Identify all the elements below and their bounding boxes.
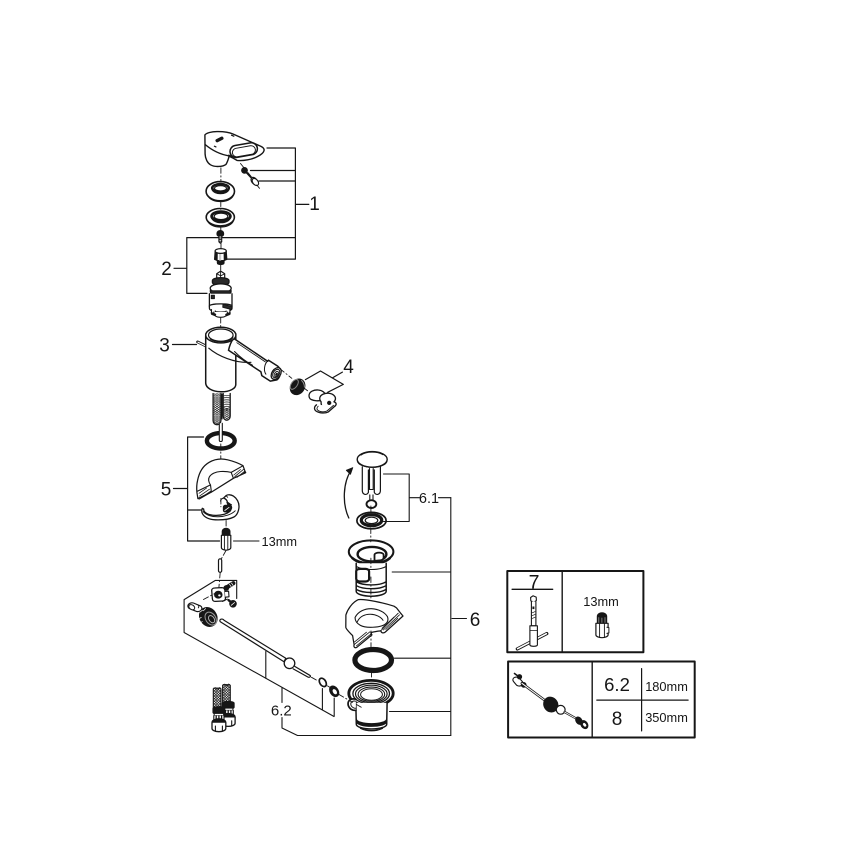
svg-text:6: 6	[470, 610, 481, 631]
svg-text:350mm: 350mm	[645, 710, 688, 725]
svg-text:180mm: 180mm	[645, 679, 688, 694]
svg-text:8: 8	[612, 709, 623, 730]
svg-text:13mm: 13mm	[583, 594, 619, 609]
svg-text:5: 5	[161, 480, 172, 501]
svg-text:2: 2	[161, 259, 172, 280]
svg-text:6.1: 6.1	[419, 491, 439, 507]
svg-text:13mm: 13mm	[262, 534, 298, 549]
svg-text:1: 1	[309, 194, 320, 215]
svg-text:4: 4	[343, 357, 354, 378]
svg-text:6.2: 6.2	[271, 702, 292, 719]
svg-text:6.2: 6.2	[604, 674, 630, 695]
svg-text:3: 3	[159, 336, 170, 357]
svg-text:7: 7	[529, 572, 540, 594]
